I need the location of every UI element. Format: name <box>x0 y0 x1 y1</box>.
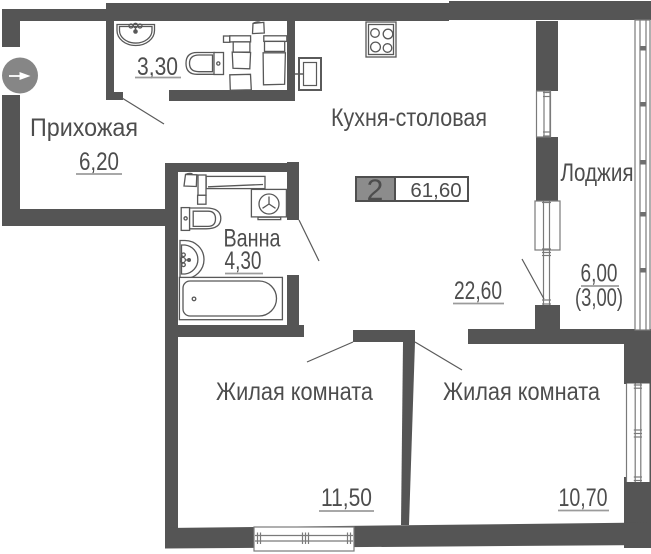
svg-text:Кухня-столовая: Кухня-столовая <box>331 104 487 132</box>
svg-text:Лоджия: Лоджия <box>561 159 634 187</box>
svg-text:22,60: 22,60 <box>454 277 502 305</box>
svg-text:11,50: 11,50 <box>321 484 372 512</box>
svg-text:Жилая комната: Жилая комната <box>216 378 373 406</box>
svg-text:4,30: 4,30 <box>225 247 262 275</box>
svg-text:6,20: 6,20 <box>79 148 119 176</box>
svg-text:(3,00): (3,00) <box>575 284 623 312</box>
svg-text:2: 2 <box>367 174 384 207</box>
svg-text:Жилая комната: Жилая комната <box>443 378 600 406</box>
svg-text:10,70: 10,70 <box>559 484 608 512</box>
svg-text:61,60: 61,60 <box>410 179 461 202</box>
svg-text:Прихожая: Прихожая <box>30 114 138 142</box>
